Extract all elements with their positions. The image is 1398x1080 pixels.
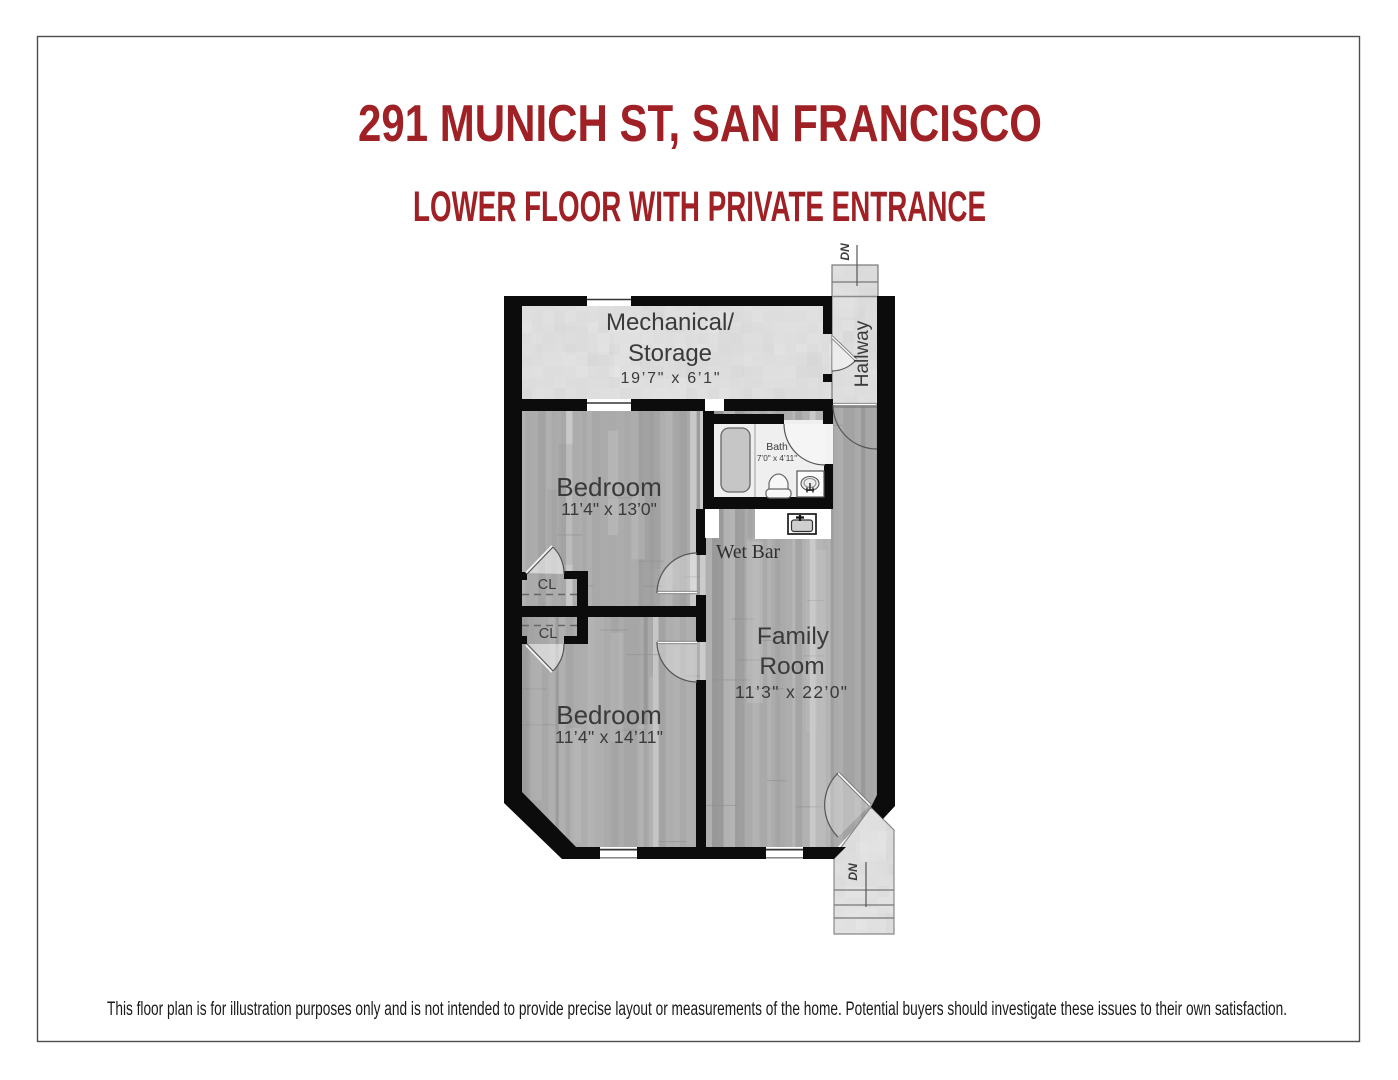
svg-text:DN: DN <box>846 863 860 881</box>
svg-text:291 MUNICH ST, SAN FRANCISCO: 291 MUNICH ST, SAN FRANCISCO <box>358 95 1042 153</box>
svg-text:Wet Bar: Wet Bar <box>716 542 780 563</box>
svg-text:LOWER FLOOR WITH PRIVATE ENTRA: LOWER FLOOR WITH PRIVATE ENTRANCE <box>413 183 986 231</box>
svg-text:11’4" x 13’0": 11’4" x 13’0" <box>561 499 657 519</box>
svg-text:7’0" x 4’11": 7’0" x 4’11" <box>757 454 797 463</box>
svg-text:11’4" x 14’11": 11’4" x 14’11" <box>555 727 663 747</box>
svg-text:Bedroom: Bedroom <box>556 472 662 502</box>
svg-text:Bath: Bath <box>766 441 788 453</box>
svg-text:11’3" x 22’0": 11’3" x 22’0" <box>735 682 847 702</box>
svg-text:Room: Room <box>759 653 824 680</box>
svg-text:CL: CL <box>539 626 558 642</box>
svg-text:Hallway: Hallway <box>852 320 873 387</box>
svg-text:This floor plan is for illustr: This floor plan is for illustration purp… <box>107 999 1287 1020</box>
svg-text:CL: CL <box>538 577 557 593</box>
svg-text:DN: DN <box>838 243 852 261</box>
svg-text:Storage: Storage <box>628 340 712 367</box>
svg-text:Bedroom: Bedroom <box>556 700 662 730</box>
svg-text:Mechanical/: Mechanical/ <box>606 309 734 336</box>
svg-text:Family: Family <box>757 623 830 650</box>
